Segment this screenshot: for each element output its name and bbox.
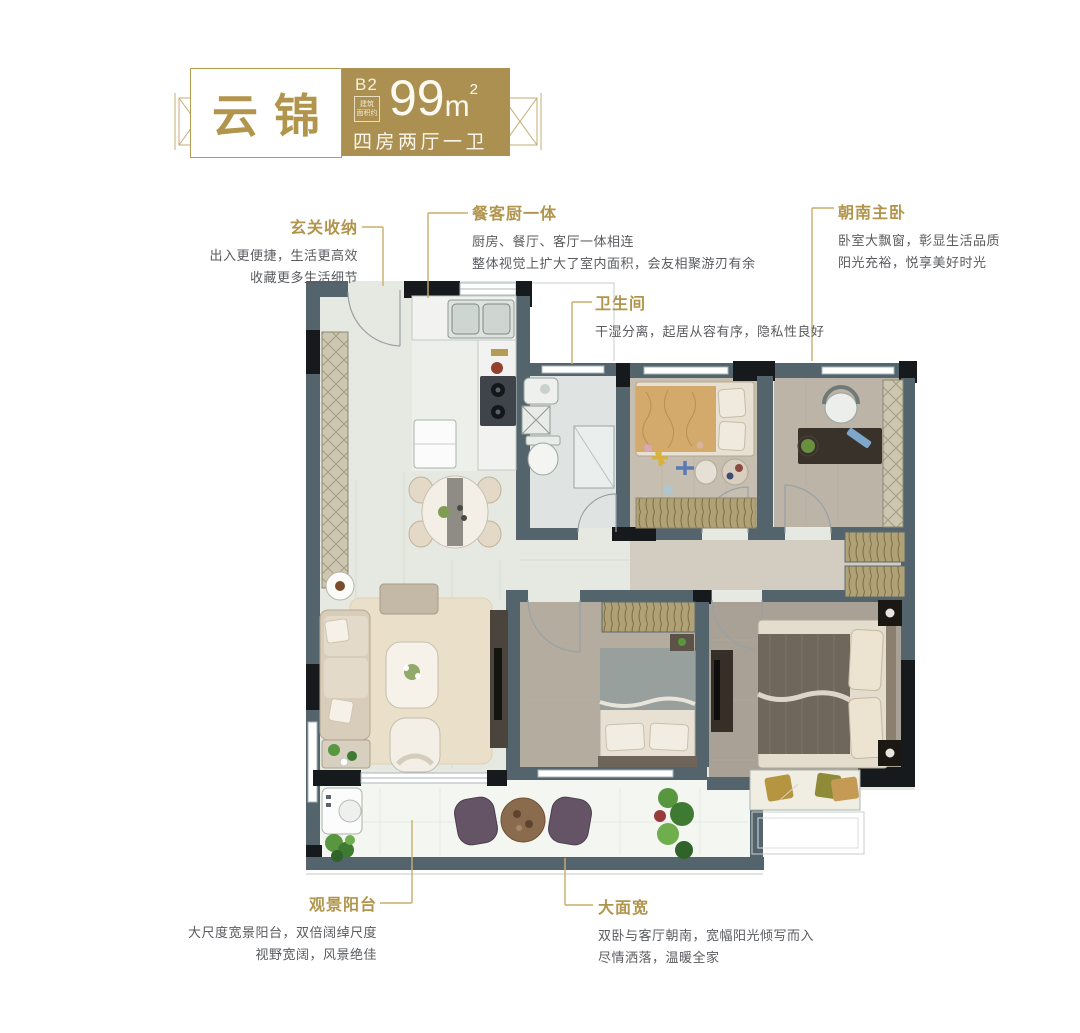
area-unit: m bbox=[445, 92, 470, 122]
foyer-cabinet-frame bbox=[322, 332, 348, 588]
living-bench bbox=[380, 584, 438, 614]
area-group: 99 m 2 bbox=[389, 70, 478, 126]
annotation-line: 卧室大飘窗，彰显生活品质 bbox=[838, 230, 1000, 252]
annotation-wide-frontage: 大面宽 双卧与客厅朝南，宽幅阳光倾写而入 尽情洒落，温暖全家 bbox=[598, 894, 814, 969]
annotation-line: 收藏更多生活细节 bbox=[110, 267, 358, 289]
study-desk bbox=[798, 427, 882, 464]
floorplan-page: 云锦 B2 建筑 面积约 99 m 2 四房两厅一卫 玄关收纳 出入更便捷，生活… bbox=[0, 0, 1080, 1033]
side-table-round bbox=[326, 572, 354, 600]
master-tv-dresser bbox=[711, 650, 733, 732]
stove bbox=[480, 376, 516, 426]
armchair bbox=[390, 718, 440, 772]
area-stamp: 建筑 面积约 bbox=[354, 96, 380, 122]
annotation-title: 餐客厨一体 bbox=[472, 200, 756, 224]
annotation-line: 视野宽阔，风景绝佳 bbox=[97, 944, 377, 966]
toilet bbox=[526, 436, 560, 475]
annotation-line: 双卧与客厅朝南，宽幅阳光倾写而入 bbox=[598, 925, 814, 947]
bedroom2-wardrobe bbox=[602, 602, 695, 632]
bedroom2-nightstand bbox=[670, 634, 694, 651]
hallway-closet-1 bbox=[845, 532, 905, 562]
annotation-dining-kitchen: 餐客厨一体 厨房、餐厅、客厅一体相连 整体视觉上扩大了室内面积，会友相聚游刃有余 bbox=[472, 200, 756, 275]
annotation-line: 干湿分离，起居从容有序，隐私性良好 bbox=[595, 321, 825, 343]
kids-table-top bbox=[722, 459, 748, 485]
layout-text: 四房两厅一卫 bbox=[353, 127, 488, 154]
hallway-closet-2 bbox=[845, 566, 905, 597]
annotation-south-master: 朝南主卧 卧室大飘窗，彰显生活品质 阳光充裕，悦享美好时光 bbox=[838, 199, 1000, 274]
unit-info-box: B2 建筑 面积约 99 m 2 四房两厅一卫 bbox=[342, 68, 510, 156]
kitchen-sink bbox=[448, 300, 514, 338]
balcony-table bbox=[501, 798, 545, 842]
coffee-table bbox=[386, 642, 438, 708]
kitchen-accent bbox=[491, 349, 508, 356]
area-exponent: 2 bbox=[470, 82, 478, 97]
area-value: 99 bbox=[389, 70, 445, 126]
bedroom2-bed bbox=[598, 648, 697, 767]
annotation-line: 大尺度宽景阳台，双倍阔绰尺度 bbox=[97, 922, 377, 944]
balcony-washer bbox=[322, 788, 362, 834]
annotation-entry-storage: 玄关收纳 出入更便捷，生活更高效 收藏更多生活细节 bbox=[110, 214, 358, 289]
tv-cabinet-living bbox=[490, 610, 508, 748]
annotation-title: 观景阳台 bbox=[97, 891, 377, 915]
floorplan-drawing bbox=[0, 0, 1080, 1033]
annotation-title: 朝南主卧 bbox=[838, 199, 1000, 223]
unit-label: B2 bbox=[355, 75, 378, 95]
fridge bbox=[414, 420, 456, 468]
master-baywindow bbox=[750, 770, 860, 810]
annotation-bathroom: 卫生间 干湿分离，起居从容有序，隐私性良好 bbox=[595, 290, 825, 343]
annotation-line: 出入更便捷，生活更高效 bbox=[110, 245, 358, 267]
leader-entry bbox=[362, 227, 383, 286]
annotation-line: 厨房、餐厅、客厅一体相连 bbox=[472, 231, 756, 253]
stamp-line2: 面积约 bbox=[355, 109, 379, 118]
coffee-machine bbox=[491, 362, 503, 374]
washing-machine-slot bbox=[522, 406, 550, 434]
master-bed bbox=[758, 620, 896, 768]
kids-baywindow-seat bbox=[636, 498, 756, 528]
annotation-line: 尽情洒落，温暖全家 bbox=[598, 947, 814, 969]
study-wardrobe bbox=[883, 380, 903, 527]
bathroom-vanity bbox=[524, 378, 558, 404]
stamp-line1: 建筑 bbox=[355, 100, 379, 109]
annotation-line: 整体视觉上扩大了室内面积，会友相聚游刃有余 bbox=[472, 253, 756, 275]
kids-bed bbox=[636, 382, 754, 456]
leader-bathroom bbox=[572, 302, 592, 364]
plant-table bbox=[322, 740, 370, 768]
shower bbox=[574, 426, 614, 488]
annotation-line: 阳光充裕，悦享美好时光 bbox=[838, 252, 1000, 274]
annotation-title: 卫生间 bbox=[595, 290, 825, 314]
sofa bbox=[320, 610, 370, 740]
title-block: 云锦 B2 建筑 面积约 99 m 2 四房两厅一卫 bbox=[190, 68, 510, 158]
project-name: 云锦 bbox=[212, 80, 336, 146]
annotation-title: 玄关收纳 bbox=[110, 214, 358, 238]
project-name-box: 云锦 bbox=[190, 68, 342, 158]
annotation-title: 大面宽 bbox=[598, 894, 814, 918]
kids-chair bbox=[695, 460, 717, 484]
dining-set bbox=[409, 476, 501, 548]
annotation-view-balcony: 观景阳台 大尺度宽景阳台，双倍阔绰尺度 视野宽阔，风景绝佳 bbox=[97, 891, 377, 966]
ac-ledge bbox=[752, 812, 864, 854]
